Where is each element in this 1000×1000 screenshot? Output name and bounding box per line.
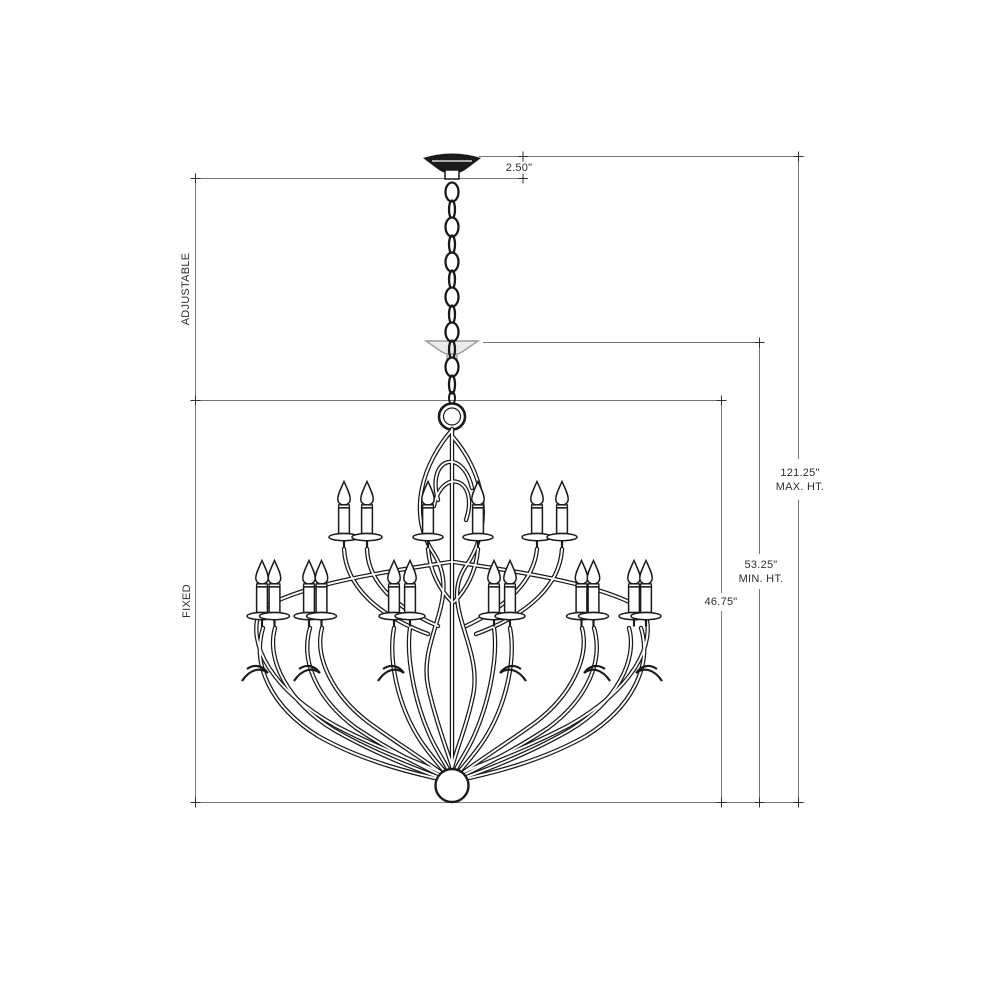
min-height-dimension: 53.25" MIN. HT. (739, 558, 784, 586)
chain (446, 183, 459, 405)
hang-ring (439, 404, 465, 430)
canopy (423, 154, 481, 180)
fixed-section-label: FIXED (181, 584, 193, 618)
min-height-value: 53.25" (739, 558, 784, 572)
candle (547, 482, 577, 548)
candle (352, 482, 382, 548)
max-height-caption: MAX. HT. (776, 480, 824, 494)
bottom-sphere-finial (436, 769, 469, 802)
dimension-lines (196, 157, 799, 803)
max-height-dimension: 121.25" MAX. HT. (776, 466, 824, 494)
max-height-value: 121.25" (776, 466, 824, 480)
drawing-canvas: 2.50" ADJUSTABLE FIXED 121.25" MAX. HT. … (0, 0, 1000, 1000)
chandelier-line-drawing (0, 0, 1000, 1000)
adjustable-section-label: ADJUSTABLE (180, 253, 192, 326)
fixture-height-dimension: 46.75" (705, 596, 738, 608)
canopy-drop-dimension: 2.50" (506, 162, 533, 174)
min-height-caption: MIN. HT. (739, 572, 784, 586)
